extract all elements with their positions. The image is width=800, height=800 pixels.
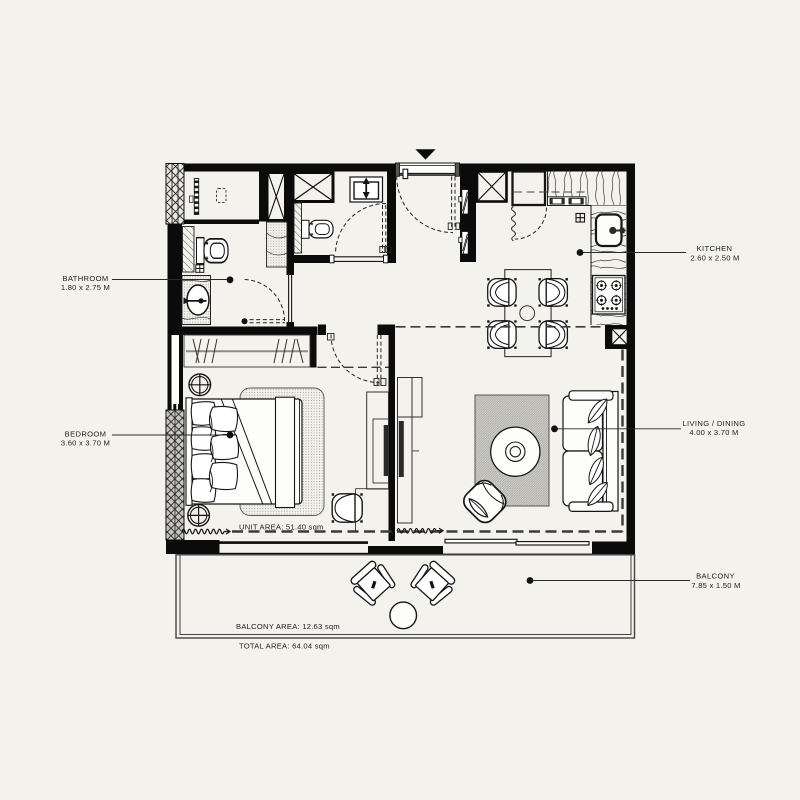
svg-text:UNIT AREA: 51.40 sqm: UNIT AREA: 51.40 sqm	[239, 523, 324, 532]
svg-text:3.60 x 3.70 M: 3.60 x 3.70 M	[61, 439, 110, 448]
svg-text:KITCHEN: KITCHEN	[697, 244, 733, 253]
svg-text:4.00 x 3.70 M: 4.00 x 3.70 M	[689, 428, 738, 437]
svg-text:BALCONY AREA: 12.63 sqm: BALCONY AREA: 12.63 sqm	[236, 622, 340, 631]
svg-text:TOTAL AREA: 64.04 sqm: TOTAL AREA: 64.04 sqm	[239, 642, 330, 651]
svg-text:BATHROOM: BATHROOM	[62, 274, 108, 283]
svg-text:2.60 x 2.50 M: 2.60 x 2.50 M	[690, 254, 739, 263]
svg-text:7.85 x 1.50 M: 7.85 x 1.50 M	[691, 581, 740, 590]
svg-text:LIVING / DINING: LIVING / DINING	[682, 419, 745, 428]
svg-text:1.80 x 2.75 M: 1.80 x 2.75 M	[61, 283, 110, 292]
svg-text:BALCONY: BALCONY	[696, 571, 735, 580]
svg-text:BEDROOM: BEDROOM	[65, 430, 107, 439]
